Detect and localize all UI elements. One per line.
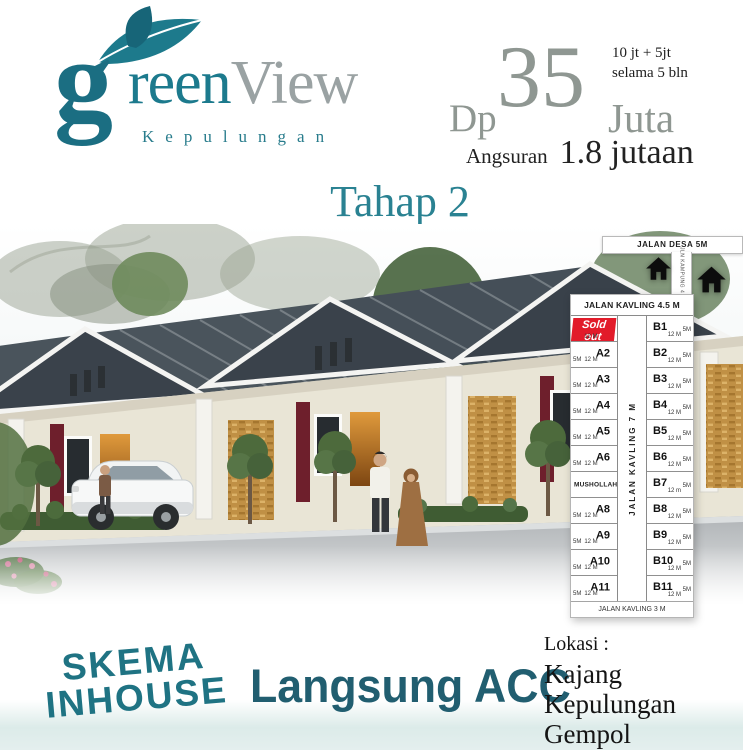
plot-cell-b8: B8 12 M 5M [647,498,693,524]
plot-cell-a2: 5M12 M A2 [571,342,617,368]
plot-label: A11 [590,581,610,593]
plot-cell-a6: 5M12 M A6 [571,446,617,472]
brand-name: reenView [128,52,357,114]
plot-label: A6 [596,451,610,463]
plot-cell-a3: 5M12 M A3 [571,368,617,394]
road-side-connector: JLN KAMPUNG 4 M [671,252,692,296]
downpayment-note-line2: selama 5 bln [612,65,688,81]
road-side-label: JLN KAMPUNG 4 M [679,247,685,300]
plot-cell-a4: 5M12 M A4 [571,394,617,420]
plot-cell-a8: 5M12 M A8 [571,498,617,524]
plot-cell-b9: B9 12 M 5M [647,524,693,550]
plot-cell-b2: B2 12 M 5M [647,342,693,368]
plot-label: A4 [596,399,610,411]
road-kavling-bottom: JALAN KAVLING 3 M [571,601,693,617]
plot-cell-b3: B3 12 M 5M [647,368,693,394]
plot-cell-b11: B11 12 M 5M [647,576,693,601]
downpayment-note-line1: 10 jt + 5jt [612,45,671,61]
plot-label: B7 [653,477,667,489]
location-line1: Kajang Kepulungan [544,659,743,719]
road-center-label: JALAN KAVLING 7 M [628,402,637,516]
road-kavling-top: JALAN KAVLING 4.5 M [571,295,693,315]
plot-label: A8 [596,503,610,515]
plot-label: A2 [596,347,610,359]
plot-cell-a1-sold: Sold out 12 M [571,316,617,342]
plot-cell-b7: B7 12 m 5M [647,472,693,498]
plot-label: A9 [596,529,610,541]
plot-column-b: B1 12 M 5M B2 12 M 5M B3 12 M 5M B4 12 M [647,316,693,601]
plot-label: B3 [653,373,667,385]
plot-label: B4 [653,399,667,411]
mushollah-label: MUSHOLLAH [574,481,617,488]
scheme-text: SKEMA INHOUSE [25,635,244,724]
plot-cell-b10: B10 12 M 5M [647,550,693,576]
property-flyer: g reenView Kepulungan Dp 35 Juta 10 jt +… [0,0,743,750]
phase-title: Tahap 2 [280,176,520,227]
approval-text: Langsung ACC [250,658,571,713]
plot-label: B1 [653,321,667,333]
plot-label: B2 [653,347,667,359]
plot-dimensions: 12 M [584,334,600,340]
plot-cell-a5: 5M12 M A5 [571,420,617,446]
road-kavling-center: JALAN KAVLING 7 M [617,316,647,601]
plot-cell-mushollah: MUSHOLLAH [571,472,617,498]
plot-label: B9 [653,529,667,541]
plot-label: A10 [590,555,610,567]
house-icon [645,256,672,281]
location-line2: Gempol [544,719,743,749]
plot-label: A5 [596,425,610,437]
brand-word-view: View [231,49,358,117]
house-icon [696,265,727,294]
plot-label: A3 [596,373,610,385]
plot-cell-a10: 5M12 M A10 [571,550,617,576]
plot-label: B5 [653,425,667,437]
location-label: Lokasi : [544,633,743,656]
downpayment-value: 35 [497,34,585,122]
plot-label: B6 [653,451,667,463]
brand-initial: g [54,22,113,140]
plot-cell-b5: B5 12 M 5M [647,420,693,446]
brand-word-green: reen [128,49,231,117]
plot-cell-a9: 5M12 M A9 [571,524,617,550]
plot-cell-a11: 5M12 M A11 [571,576,617,601]
installment-value: 1.8 jutaan [560,134,694,171]
siteplan-card: JALAN KAVLING 4.5 M Sold out 12 M 5M12 M… [570,294,694,618]
downpayment-note: 10 jt + 5jt selama 5 bln [612,44,688,83]
plot-cell-b1: B1 12 M 5M [647,316,693,342]
brand-subtitle: Kepulungan [142,127,335,147]
installment-label: Angsuran [466,144,548,168]
installment: Angsuran 1.8 jutaan [466,134,694,172]
plot-column-a: Sold out 12 M 5M12 M A2 5M12 M A3 5M12 M… [571,316,617,601]
plot-label: B8 [653,503,667,515]
plot-cell-b6: B6 12 M 5M [647,446,693,472]
location-block: Lokasi : Kajang Kepulungan Gempol [544,633,743,750]
plot-cell-b4: B4 12 M 5M [647,394,693,420]
